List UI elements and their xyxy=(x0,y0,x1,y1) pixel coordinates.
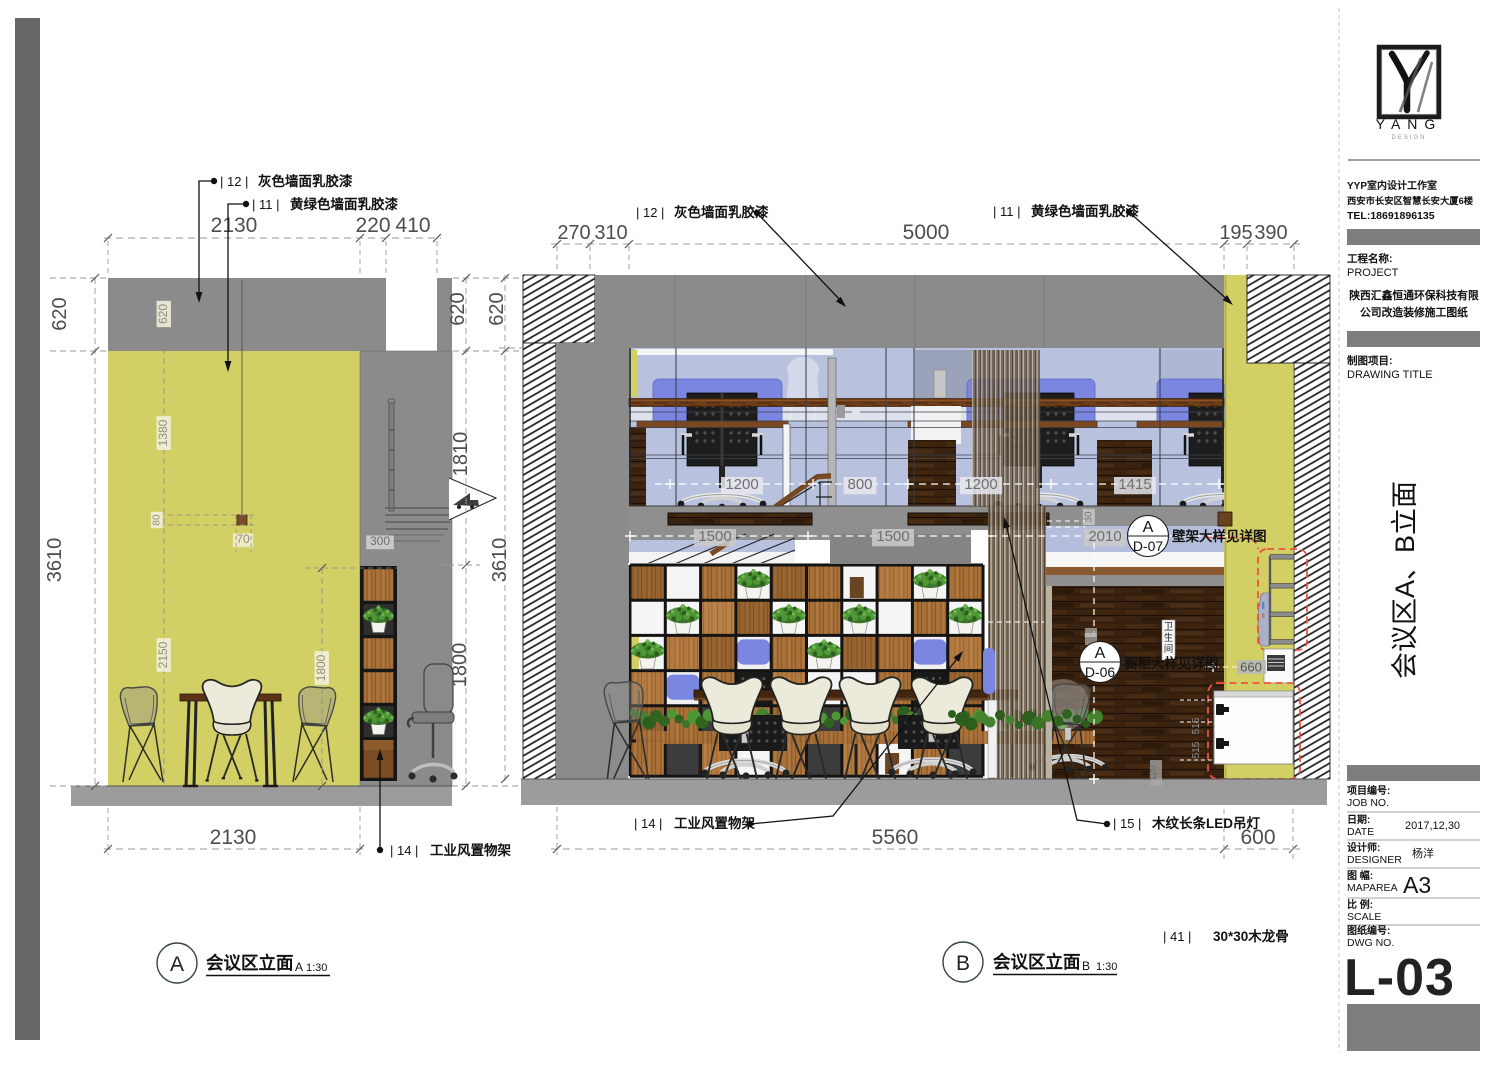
svg-text:1800: 1800 xyxy=(449,643,471,688)
svg-text:YYP室内设计工作室: YYP室内设计工作室 xyxy=(1347,179,1437,192)
svg-text:| 12 |: | 12 | xyxy=(636,205,664,220)
svg-text:工业风置物架: 工业风置物架 xyxy=(430,842,511,858)
svg-text:515: 515 xyxy=(1191,741,1202,758)
svg-text:黄绿色墙面乳胶漆: 黄绿色墙面乳胶漆 xyxy=(290,196,398,212)
svg-text:1:30: 1:30 xyxy=(306,962,327,974)
svg-text:项目编号:: 项目编号: xyxy=(1347,784,1390,797)
svg-text:620: 620 xyxy=(486,292,508,325)
svg-text:2010: 2010 xyxy=(1088,528,1121,545)
svg-text:30*30木龙骨: 30*30木龙骨 xyxy=(1213,928,1289,944)
svg-text:图 幅:: 图 幅: xyxy=(1347,869,1373,882)
svg-text:D-07: D-07 xyxy=(1133,538,1164,554)
svg-text:JOB NO.: JOB NO. xyxy=(1347,797,1389,809)
svg-text:270: 270 xyxy=(557,222,590,244)
svg-text:1810: 1810 xyxy=(450,432,472,477)
svg-text:| 11 |: | 11 | xyxy=(252,197,279,212)
svg-text:会议区立面: 会议区立面 xyxy=(206,953,294,973)
svg-text:杨洋: 杨洋 xyxy=(1412,846,1434,860)
svg-text:| 11 |: | 11 | xyxy=(993,204,1020,219)
svg-text:生: 生 xyxy=(1164,632,1174,644)
svg-text:L-03: L-03 xyxy=(1344,949,1455,1007)
svg-text:620: 620 xyxy=(156,304,170,324)
svg-text:220: 220 xyxy=(355,214,390,237)
svg-text:800: 800 xyxy=(847,476,872,493)
svg-text:西安市长安区智慧长安大厦6楼: 西安市长安区智慧长安大厦6楼 xyxy=(1347,195,1474,206)
svg-text:图纸编号:: 图纸编号: xyxy=(1347,924,1390,937)
svg-text:灰色墙面乳胶漆: 灰色墙面乳胶漆 xyxy=(674,204,769,220)
svg-text:A: A xyxy=(1143,519,1154,536)
svg-text:310: 310 xyxy=(594,222,627,244)
svg-text:间: 间 xyxy=(1164,643,1174,655)
svg-text:设计师:: 设计师: xyxy=(1347,841,1380,854)
svg-text:2150: 2150 xyxy=(156,641,170,668)
svg-text:300: 300 xyxy=(370,534,390,548)
svg-text:木纹长条LED吊灯: 木纹长条LED吊灯 xyxy=(1151,815,1260,831)
svg-text:B: B xyxy=(1082,959,1090,973)
svg-text:| 41 |: | 41 | xyxy=(1163,929,1191,944)
svg-text:620: 620 xyxy=(49,297,71,330)
svg-text:| 14 |: | 14 | xyxy=(390,843,418,858)
svg-text:A: A xyxy=(295,960,303,974)
svg-text:1500: 1500 xyxy=(698,528,731,545)
svg-text:| 15 |: | 15 | xyxy=(1113,816,1141,831)
svg-text:1415: 1415 xyxy=(1118,476,1151,493)
svg-text:120: 120 xyxy=(1148,765,1159,781)
svg-text:| 14 |: | 14 | xyxy=(634,816,662,831)
svg-text:1800: 1800 xyxy=(314,654,328,681)
svg-text:灰色墙面乳胶漆: 灰色墙面乳胶漆 xyxy=(258,173,353,189)
svg-text:410: 410 xyxy=(395,214,430,237)
svg-text:1380: 1380 xyxy=(156,419,170,446)
svg-text:黄绿色墙面乳胶漆: 黄绿色墙面乳胶漆 xyxy=(1031,203,1139,219)
svg-text:1200: 1200 xyxy=(725,476,758,493)
svg-text:DRAWING TITLE: DRAWING TITLE xyxy=(1347,369,1433,381)
svg-text:DWG NO.: DWG NO. xyxy=(1347,937,1394,949)
svg-text:5560: 5560 xyxy=(872,826,919,849)
svg-text:515: 515 xyxy=(1191,717,1202,734)
svg-text:2130: 2130 xyxy=(210,826,257,849)
svg-text:制图项目:: 制图项目: xyxy=(1347,354,1393,367)
svg-text:卫: 卫 xyxy=(1164,622,1174,633)
svg-text:公司改造装修施工图纸: 公司改造装修施工图纸 xyxy=(1360,305,1468,319)
svg-text:MAPAREA: MAPAREA xyxy=(1347,882,1398,894)
svg-text:壁架大样见详图: 壁架大样见详图 xyxy=(1172,528,1267,544)
svg-text:橱柜大样见详图: 橱柜大样见详图 xyxy=(1124,655,1219,671)
svg-text:195: 195 xyxy=(1219,222,1252,244)
svg-text:工程名称:: 工程名称: xyxy=(1347,252,1393,265)
svg-text:比 例:: 比 例: xyxy=(1347,898,1373,911)
svg-text:2017,12,30: 2017,12,30 xyxy=(1405,820,1460,832)
svg-text:| 12 |: | 12 | xyxy=(220,174,248,189)
svg-text:A3: A3 xyxy=(1403,872,1431,898)
svg-text:DATE: DATE xyxy=(1347,826,1374,838)
svg-text:B: B xyxy=(956,952,970,975)
svg-text:D-06: D-06 xyxy=(1085,664,1116,680)
svg-text:DESIGNER: DESIGNER xyxy=(1347,854,1402,866)
svg-text:70: 70 xyxy=(236,532,250,546)
svg-text:620: 620 xyxy=(447,292,469,325)
svg-text:5000: 5000 xyxy=(903,221,950,244)
svg-text:陕西汇鑫恒通环保科技有限: 陕西汇鑫恒通环保科技有限 xyxy=(1349,288,1479,302)
svg-text:TEL:18691896135: TEL:18691896135 xyxy=(1347,210,1435,222)
svg-text:3610: 3610 xyxy=(489,538,511,583)
svg-text:会议区A、B立面: 会议区A、B立面 xyxy=(1390,481,1420,679)
svg-text:30: 30 xyxy=(1084,511,1095,523)
svg-text:YANG: YANG xyxy=(1376,116,1443,132)
svg-text:日期:: 日期: xyxy=(1347,813,1370,826)
svg-text:3610: 3610 xyxy=(44,538,66,583)
svg-text:2130: 2130 xyxy=(211,214,258,237)
svg-text:DESIGN: DESIGN xyxy=(1391,135,1426,141)
svg-text:1500: 1500 xyxy=(876,528,909,545)
svg-text:A: A xyxy=(170,953,184,976)
svg-text:会议区立面: 会议区立面 xyxy=(993,952,1081,972)
svg-text:工业风置物架: 工业风置物架 xyxy=(674,815,755,831)
svg-text:1:30: 1:30 xyxy=(1096,961,1117,973)
svg-text:1200: 1200 xyxy=(964,476,997,493)
svg-text:660: 660 xyxy=(1240,660,1262,675)
svg-text:A: A xyxy=(1095,645,1106,662)
svg-text:SCALE: SCALE xyxy=(1347,911,1381,923)
svg-text:80: 80 xyxy=(152,514,163,526)
svg-text:PROJECT: PROJECT xyxy=(1347,267,1399,279)
svg-text:390: 390 xyxy=(1254,222,1287,244)
